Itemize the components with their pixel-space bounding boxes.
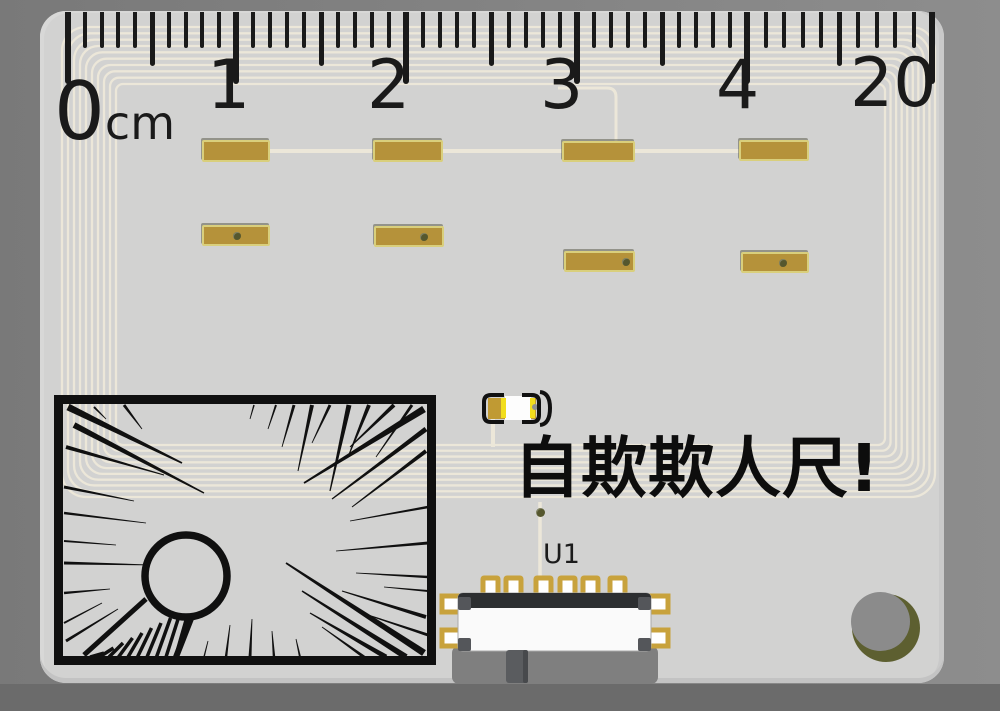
ruler-minor-tick	[83, 12, 87, 48]
ruler-half-tick	[837, 12, 842, 66]
hole-opening	[851, 592, 910, 651]
ruler-minor-tick	[336, 12, 340, 48]
ruler-minor-tick	[387, 12, 391, 48]
ruler-minor-tick	[875, 12, 879, 48]
ruler-minor-tick	[819, 12, 823, 48]
comic-circle-and-hatch	[84, 535, 227, 657]
ruler-minor-tick	[217, 12, 221, 48]
ruler-minor-tick	[893, 12, 897, 48]
ruler-minor-tick	[116, 12, 120, 48]
ruler-minor-tick	[421, 12, 425, 48]
ruler-number: 3	[540, 52, 583, 120]
ruler-minor-tick	[541, 12, 545, 48]
comic-panel	[54, 395, 436, 668]
ruler-number: 2	[367, 52, 410, 120]
ruler-unit-label: cm	[105, 100, 175, 146]
ruler-minor-tick	[912, 12, 916, 48]
gold-test-pad	[564, 251, 635, 272]
ruler-minor-tick	[455, 12, 459, 48]
ruler-half-tick	[319, 12, 324, 66]
ruler-minor-tick	[251, 12, 255, 48]
ruler-minor-tick	[711, 12, 715, 48]
ruler-minor-tick	[524, 12, 528, 48]
ruler-number-zero: 0	[54, 72, 105, 152]
gold-test-pad	[562, 141, 635, 162]
led-body	[505, 396, 531, 420]
ruler-minor-tick	[782, 12, 786, 48]
pad-via-dot	[622, 258, 630, 266]
gold-test-pad	[374, 226, 444, 247]
pad-via-dot	[420, 233, 428, 241]
ruler-minor-tick	[167, 12, 171, 48]
render-backdrop: 123420 0cm 自欺欺人尺! U1	[0, 0, 1000, 711]
gold-test-pad	[739, 140, 809, 161]
ruler-minor-tick	[694, 12, 698, 48]
ruler-minor-tick	[609, 12, 613, 48]
ruler-half-tick	[660, 12, 665, 66]
ruler-number: 20	[850, 50, 937, 118]
ruler-minor-tick	[200, 12, 204, 48]
ruler-minor-tick	[801, 12, 805, 48]
via-dot	[536, 508, 545, 517]
ruler-minor-tick	[472, 12, 476, 48]
ruler-minor-tick	[728, 12, 732, 48]
gold-test-pad	[202, 140, 270, 162]
component-ref-label: U1	[543, 541, 580, 568]
ruler-half-tick	[150, 12, 155, 66]
ruler-half-tick	[489, 12, 494, 66]
pad-via-dot	[233, 232, 241, 240]
ruler-minor-tick	[285, 12, 289, 48]
ruler-minor-tick	[100, 12, 104, 48]
ruler-number: 1	[207, 52, 250, 120]
ruler-minor-tick	[302, 12, 306, 48]
ruler-minor-tick	[438, 12, 442, 48]
ruler-minor-tick	[677, 12, 681, 48]
switch-knob	[506, 650, 528, 683]
ruler-minor-tick	[133, 12, 137, 48]
slide-switch-u1	[438, 566, 672, 698]
led-terminal-left	[501, 398, 506, 418]
ruler-minor-tick	[592, 12, 596, 48]
ruler-minor-tick	[558, 12, 562, 48]
board-edge-notch	[452, 646, 658, 684]
gold-test-pad	[741, 252, 809, 273]
ruler-minor-tick	[856, 12, 860, 48]
ruler-minor-tick	[184, 12, 188, 48]
mounting-hole	[845, 586, 927, 668]
ruler-minor-tick	[370, 12, 374, 48]
ruler-minor-tick	[764, 12, 768, 48]
ruler-minor-tick	[626, 12, 630, 48]
ruler-zero-group: 0cm	[54, 72, 175, 152]
gold-test-pad	[202, 225, 270, 246]
switch-top-bar	[458, 593, 651, 608]
comic-circle	[145, 535, 227, 617]
ruler-minor-tick	[507, 12, 511, 48]
pad-via-dot	[779, 259, 787, 267]
ruler-minor-tick	[353, 12, 357, 48]
gold-test-pad	[373, 140, 443, 162]
ruler-minor-tick	[268, 12, 272, 48]
board-caption-silkscreen: 自欺欺人尺!	[514, 436, 880, 502]
led-component	[478, 388, 554, 450]
ruler-number: 4	[716, 52, 759, 120]
ruler-minor-tick	[643, 12, 647, 48]
